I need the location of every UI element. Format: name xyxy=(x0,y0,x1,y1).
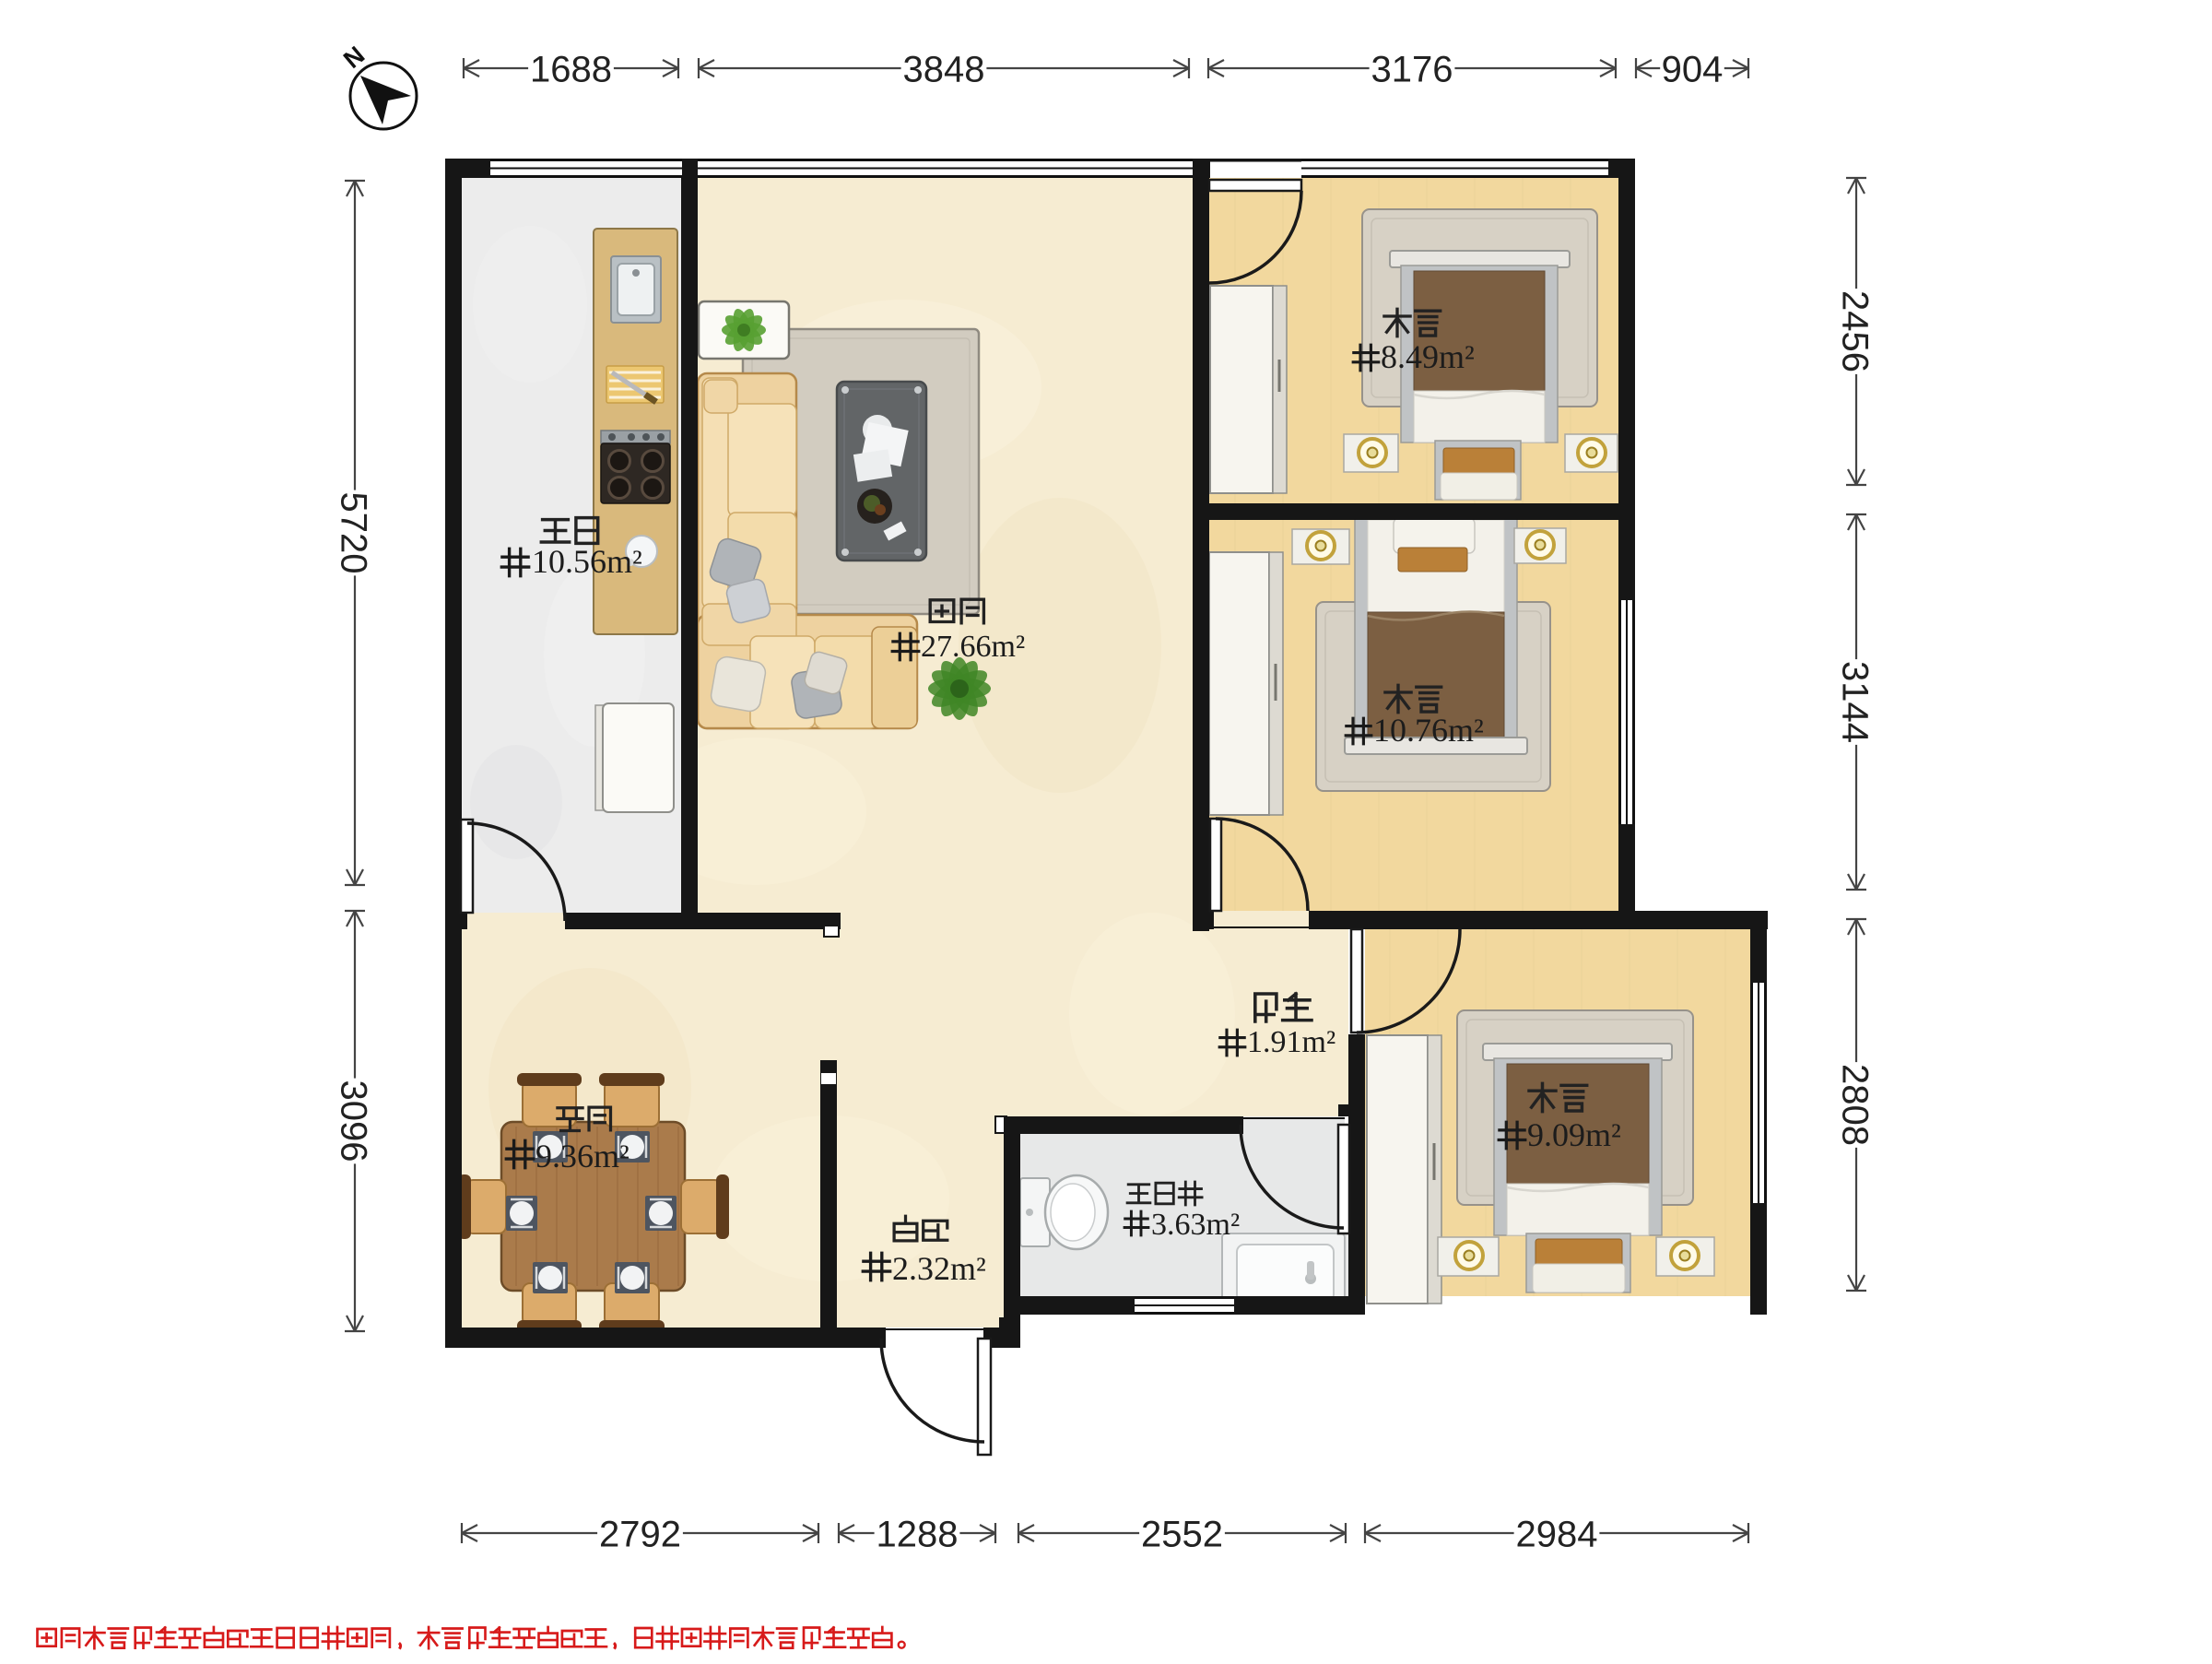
svg-text:3848: 3848 xyxy=(903,49,985,89)
svg-text:2808: 2808 xyxy=(1835,1064,1876,1146)
svg-text:8.49m²: 8.49m² xyxy=(1381,338,1475,375)
svg-text:10.56m²: 10.56m² xyxy=(532,543,642,580)
svg-text:3.63m²: 3.63m² xyxy=(1151,1208,1240,1242)
svg-text:3144: 3144 xyxy=(1835,661,1876,743)
svg-text:1288: 1288 xyxy=(877,1514,959,1554)
svg-text:5720: 5720 xyxy=(334,492,374,574)
svg-text:3176: 3176 xyxy=(1371,49,1453,89)
svg-text:9.36m²: 9.36m² xyxy=(535,1138,629,1174)
svg-text:2456: 2456 xyxy=(1835,290,1876,372)
svg-text:3096: 3096 xyxy=(334,1080,374,1162)
svg-text:2984: 2984 xyxy=(1516,1514,1598,1554)
svg-text:904: 904 xyxy=(1662,49,1724,89)
svg-text:2552: 2552 xyxy=(1141,1514,1223,1554)
svg-text:1688: 1688 xyxy=(530,49,612,89)
svg-text:2.32m²: 2.32m² xyxy=(892,1250,986,1287)
svg-text:10.76m²: 10.76m² xyxy=(1373,712,1484,749)
svg-text:1.91m²: 1.91m² xyxy=(1247,1025,1335,1059)
svg-text:27.66m²: 27.66m² xyxy=(921,630,1025,664)
svg-text:9.09m²: 9.09m² xyxy=(1527,1116,1621,1153)
svg-text:2792: 2792 xyxy=(599,1514,681,1554)
